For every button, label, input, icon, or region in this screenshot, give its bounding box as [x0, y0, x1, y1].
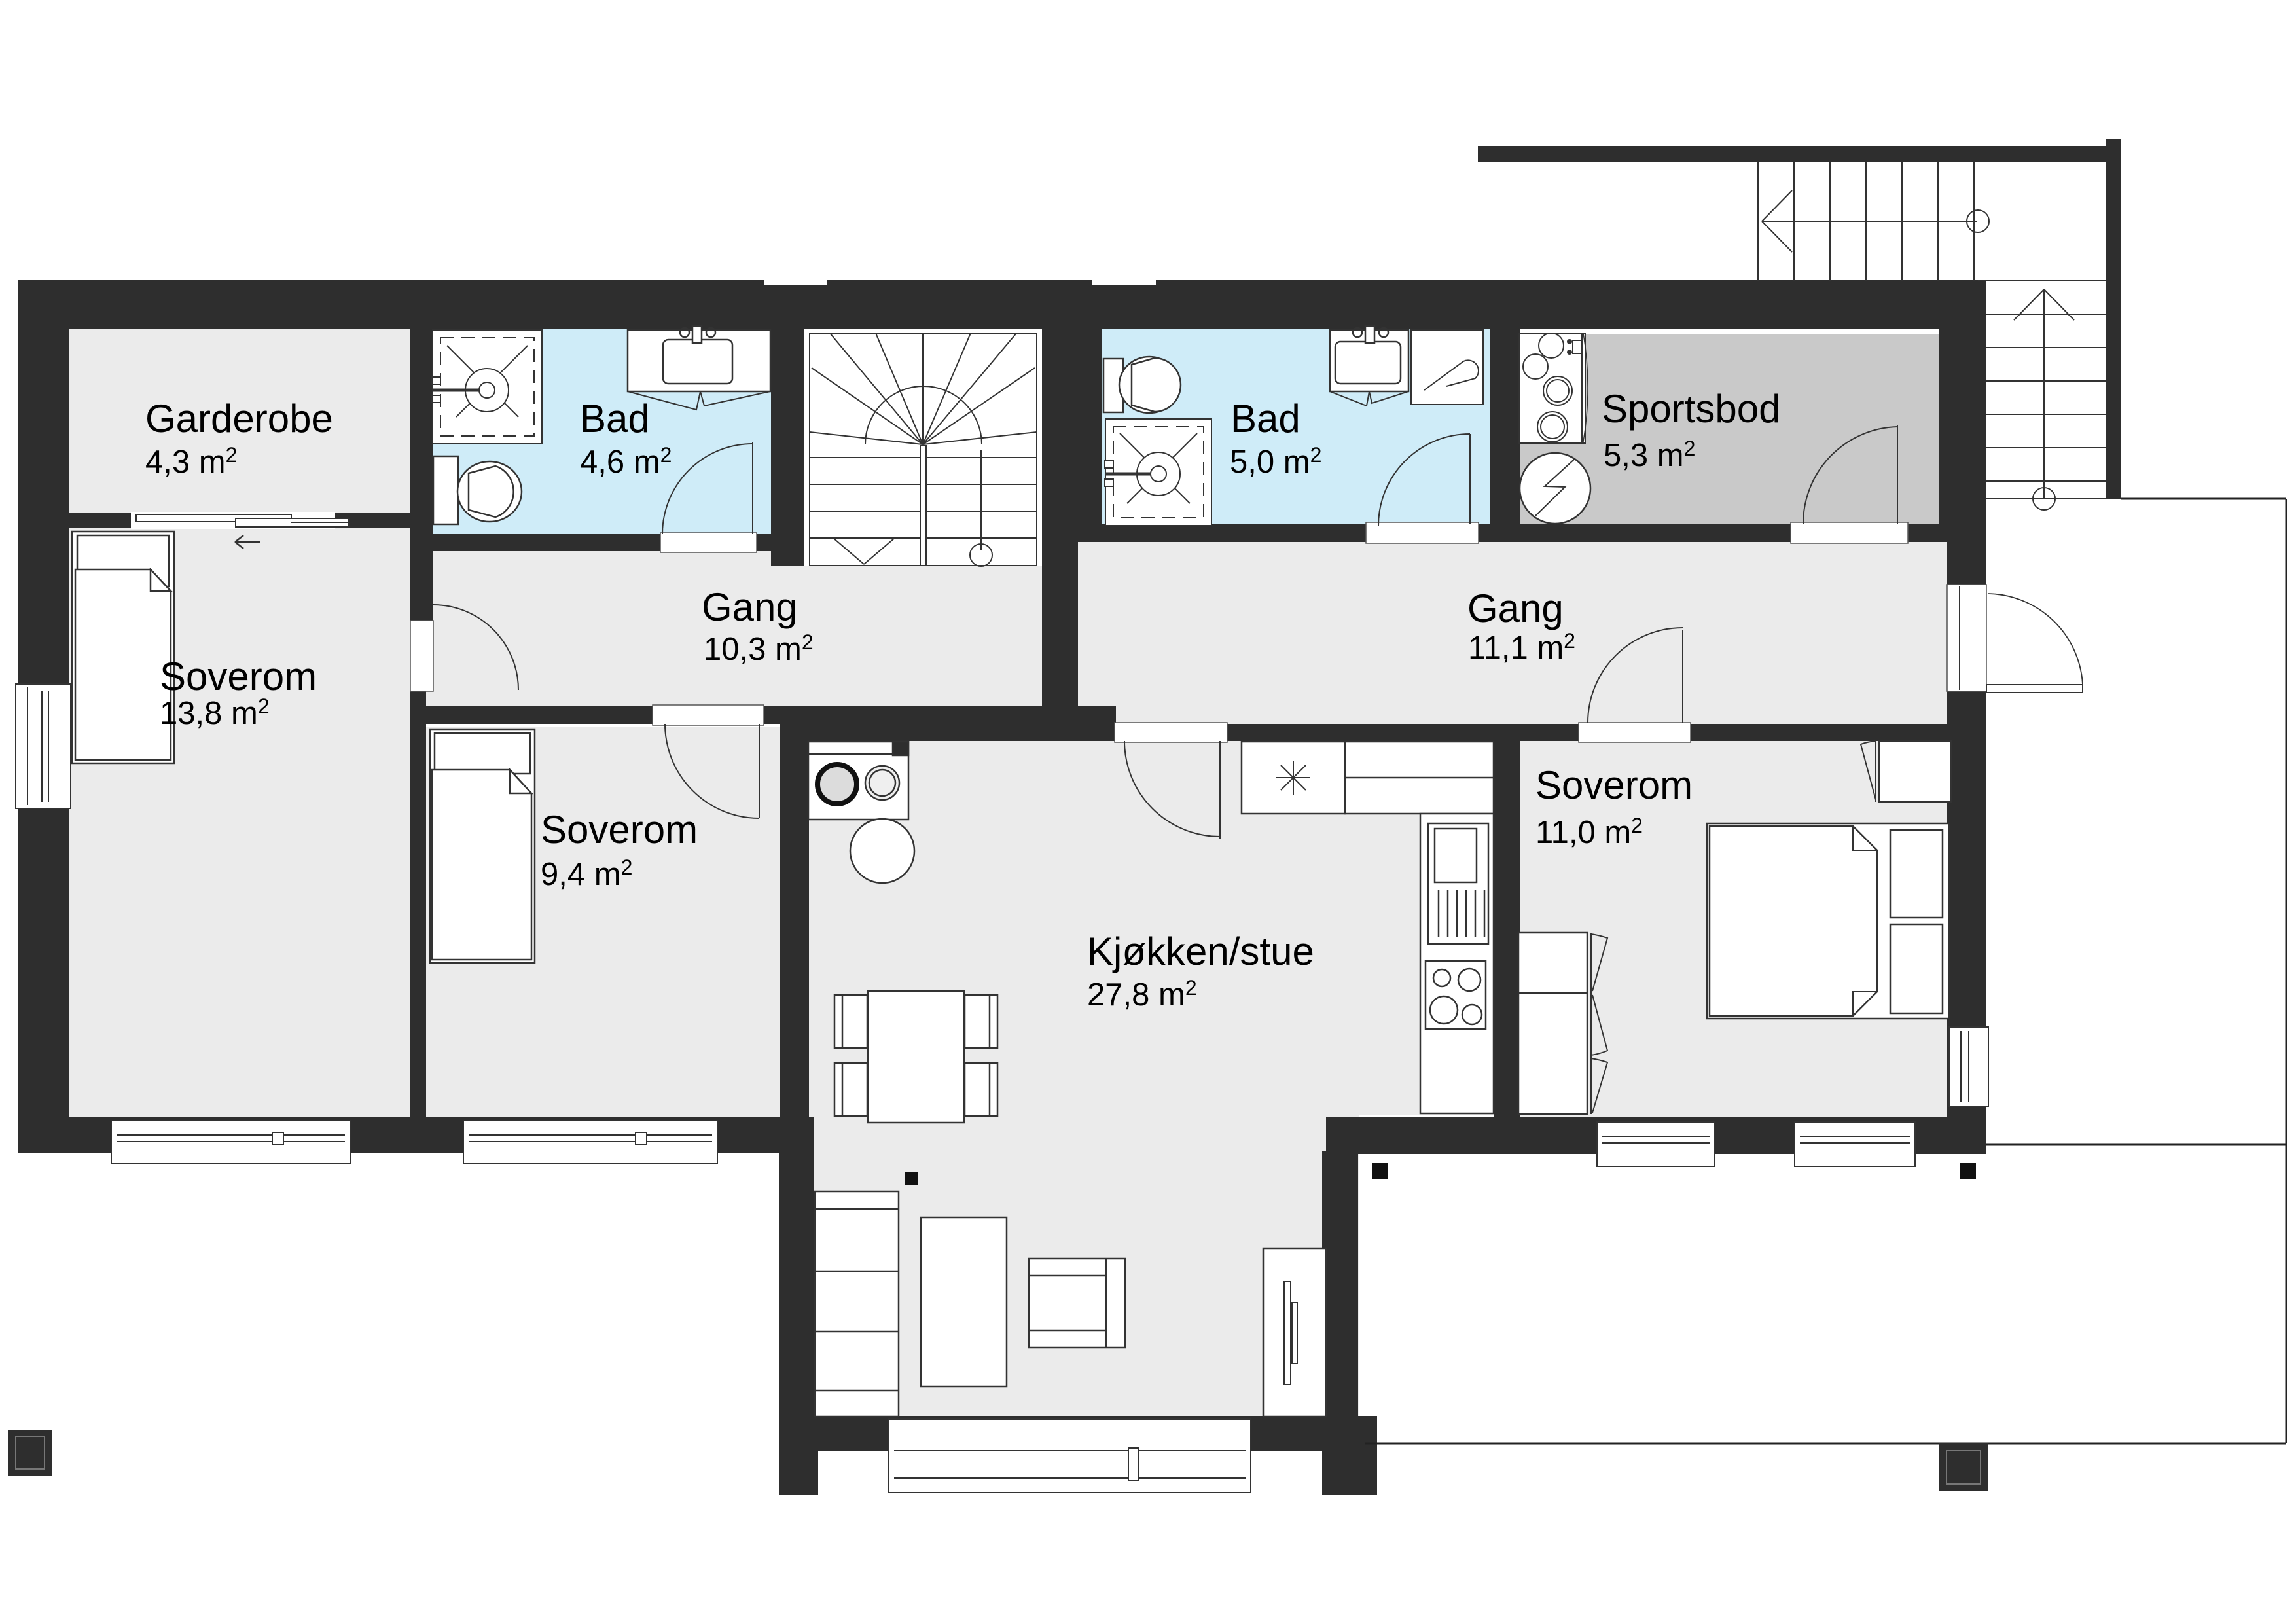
svg-text:Soverom: Soverom [1535, 763, 1693, 807]
svg-text:Gang: Gang [702, 585, 798, 629]
svg-text:Garderobe: Garderobe [145, 397, 333, 441]
svg-text:5,3 m2: 5,3 m2 [1604, 437, 1695, 473]
svg-text:11,1 m2: 11,1 m2 [1468, 629, 1575, 666]
svg-text:Gang: Gang [1467, 586, 1564, 630]
svg-text:4,6 m2: 4,6 m2 [580, 443, 672, 480]
svg-text:Sportsbod: Sportsbod [1602, 387, 1781, 431]
svg-text:10,3 m2: 10,3 m2 [704, 630, 814, 667]
svg-text:11,0 m2: 11,0 m2 [1535, 814, 1643, 850]
svg-text:Bad: Bad [1230, 397, 1300, 441]
svg-text:9,4 m2: 9,4 m2 [541, 856, 632, 892]
svg-text:Soverom: Soverom [541, 808, 698, 852]
svg-text:27,8 m2: 27,8 m2 [1087, 976, 1197, 1013]
svg-text:5,0 m2: 5,0 m2 [1230, 443, 1321, 480]
svg-text:Kjøkken/stue: Kjøkken/stue [1087, 929, 1314, 973]
svg-text:13,8 m2: 13,8 m2 [160, 695, 270, 731]
svg-text:Soverom: Soverom [160, 655, 317, 698]
svg-text:Bad: Bad [580, 397, 650, 441]
svg-text:4,3 m2: 4,3 m2 [145, 443, 237, 480]
